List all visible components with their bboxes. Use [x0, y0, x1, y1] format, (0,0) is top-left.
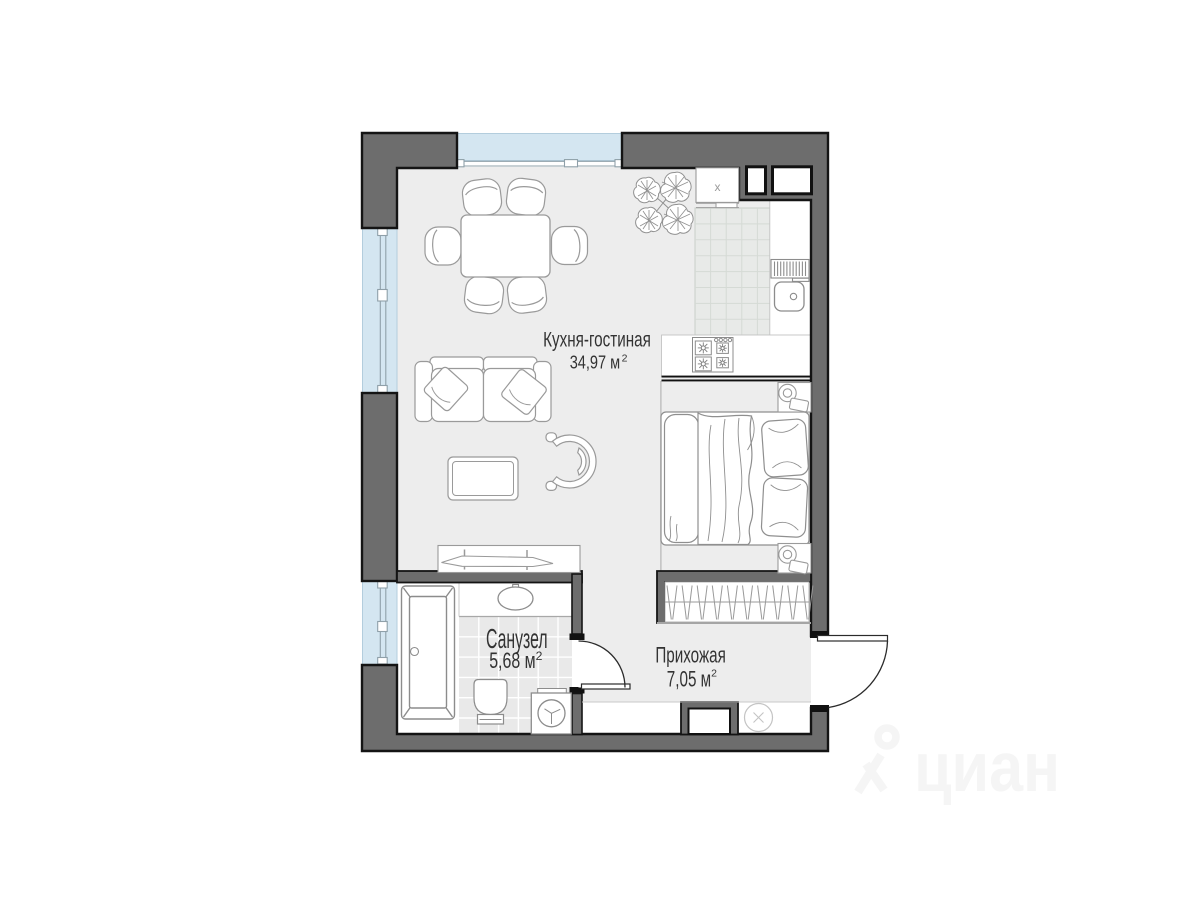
svg-text:циан: циан: [914, 728, 1060, 806]
svg-text:7,05 м: 7,05 м: [667, 666, 711, 691]
svg-text:x: x: [715, 180, 721, 194]
svg-text:Прихожая: Прихожая: [655, 643, 726, 668]
svg-text:2: 2: [711, 668, 717, 680]
svg-text:5,68 м: 5,68 м: [489, 648, 535, 673]
svg-text:2: 2: [536, 649, 543, 663]
svg-text:Кухня-гостиная: Кухня-гостиная: [543, 329, 651, 352]
svg-text:34,97 м: 34,97 м: [570, 353, 621, 374]
svg-text:2: 2: [622, 353, 628, 365]
